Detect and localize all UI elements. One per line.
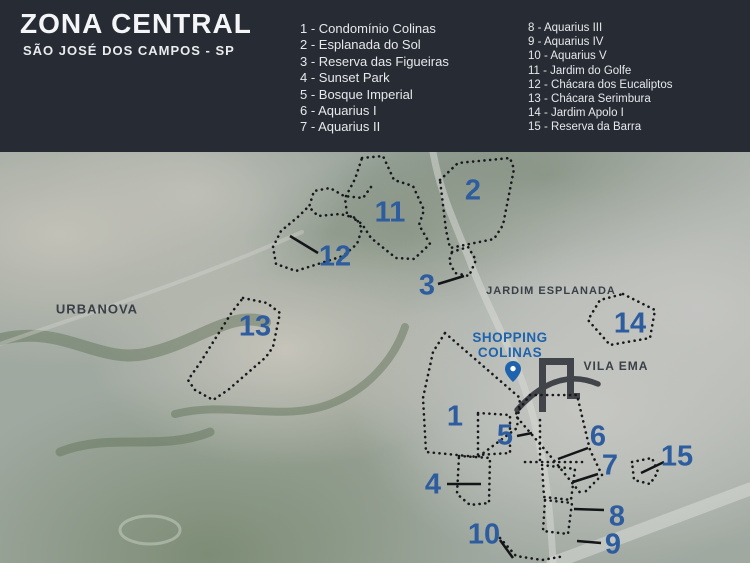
map-region-number-14: 14 (614, 310, 646, 339)
legend-item: 8 - Aquarius III (528, 21, 672, 35)
legend-item: 2 - Esplanada do Sol (300, 37, 449, 53)
legend-item: 4 - Sunset Park (300, 70, 449, 86)
area-label-jardim-esplanada: JARDIM ESPLANADA (486, 285, 616, 297)
map-region-number-4: 4 (425, 471, 441, 500)
legend-item: 6 - Aquarius I (300, 103, 449, 119)
poi-label-shopping-colinas: SHOPPING COLINAS (472, 330, 547, 360)
infographic-map-page: ZONA CENTRAL SÃO JOSÉ DOS CAMPOS - SP 1 … (0, 0, 750, 563)
poi-label-line1: SHOPPING (472, 330, 547, 345)
map-region-number-6: 6 (590, 423, 606, 452)
page-subtitle: SÃO JOSÉ DOS CAMPOS - SP (23, 43, 235, 58)
area-label-urbanova: URBANOVA (56, 302, 138, 317)
map-region-number-5: 5 (497, 422, 513, 451)
legend-item: 14 - Jardim Apolo I (528, 106, 672, 120)
legend-item: 3 - Reserva das Figueiras (300, 54, 449, 70)
legend-item: 1 - Condomínio Colinas (300, 21, 449, 37)
legend-item: 13 - Chácara Serimbura (528, 92, 672, 106)
page-title: ZONA CENTRAL (20, 8, 252, 40)
legend-column-2: 8 - Aquarius III 9 - Aquarius IV 10 - Aq… (528, 21, 672, 135)
satellite-map: 1 2 3 4 5 6 7 8 9 10 11 12 13 14 15 URBA… (0, 152, 750, 563)
header: ZONA CENTRAL SÃO JOSÉ DOS CAMPOS - SP 1 … (0, 0, 750, 152)
area-label-vila-ema: VILA EMA (584, 359, 649, 373)
map-region-number-13: 13 (239, 313, 271, 342)
map-region-number-8: 8 (609, 503, 625, 532)
map-region-number-15: 15 (661, 443, 693, 472)
map-region-number-9: 9 (605, 531, 621, 560)
legend-item: 11 - Jardim do Golfe (528, 64, 672, 78)
map-region-number-11: 11 (375, 199, 406, 228)
legend-item: 9 - Aquarius IV (528, 35, 672, 49)
map-region-number-10: 10 (468, 521, 500, 550)
legend-item: 12 - Chácara dos Eucaliptos (528, 78, 672, 92)
map-region-number-7: 7 (602, 452, 618, 481)
map-region-number-2: 2 (465, 177, 481, 206)
map-region-number-12: 12 (319, 243, 351, 272)
legend-item: 7 - Aquarius II (300, 119, 449, 135)
legend-item: 15 - Reserva da Barra (528, 120, 672, 134)
legend-column-1: 1 - Condomínio Colinas 2 - Esplanada do … (300, 21, 449, 136)
legend-item: 10 - Aquarius V (528, 49, 672, 63)
map-region-number-1: 1 (447, 403, 463, 432)
map-region-number-3: 3 (419, 272, 435, 301)
legend-item: 5 - Bosque Imperial (300, 87, 449, 103)
region-outline-4 (457, 456, 490, 505)
poi-label-line2: COLINAS (472, 345, 547, 360)
river-lines (0, 319, 405, 452)
region-outlines (188, 156, 658, 560)
